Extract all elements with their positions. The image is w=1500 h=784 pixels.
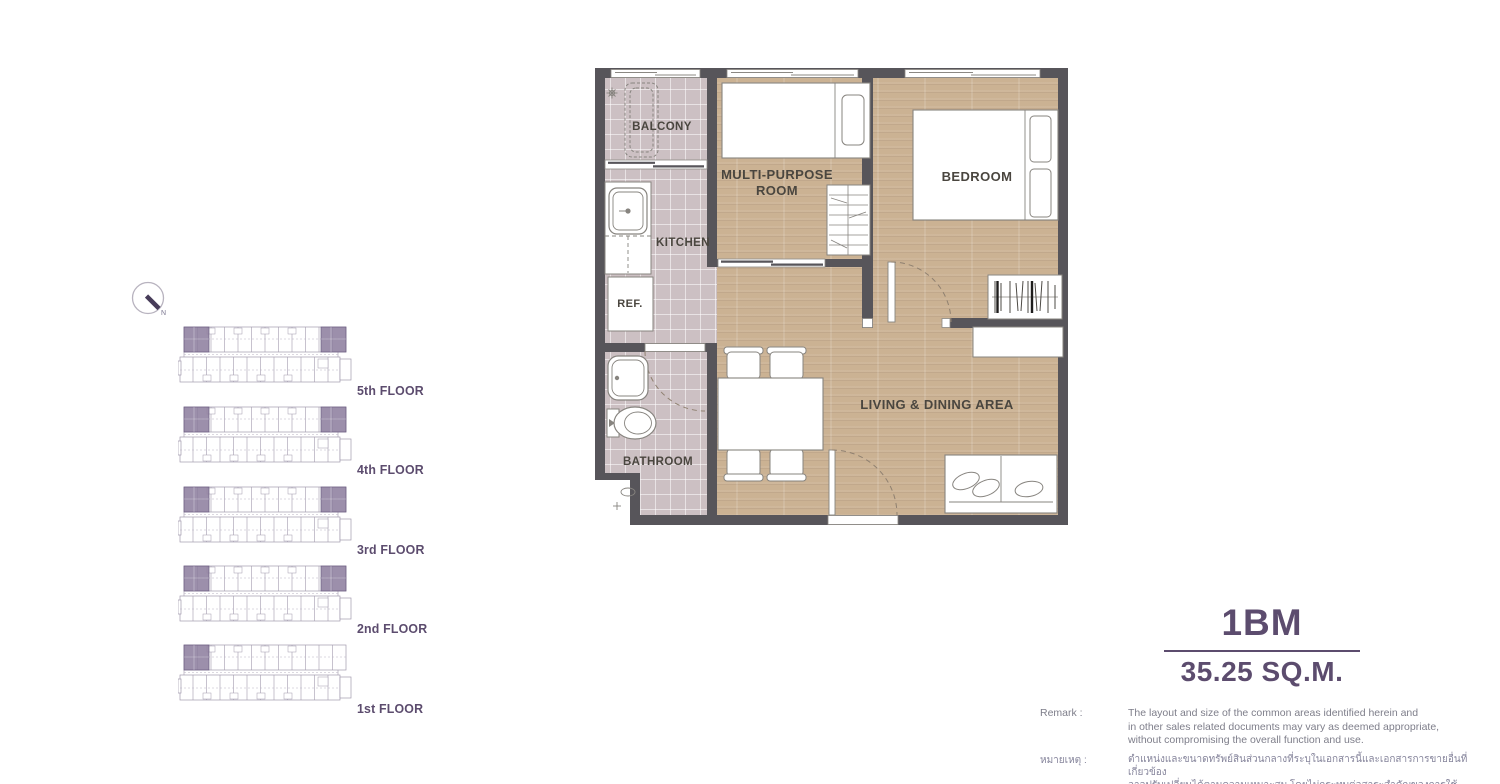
- bedroom-door-leaf: [888, 262, 895, 322]
- floor-label-2nd: 2nd FLOOR: [357, 621, 424, 636]
- floor-label-1st: 1st FLOOR: [357, 701, 424, 716]
- highlighted-unit: [184, 645, 209, 670]
- kitchen-sink-icon: [609, 188, 647, 234]
- floor-label-3rd: 3rd FLOOR: [357, 542, 424, 557]
- bathroom-door-swing: [645, 351, 705, 411]
- floor-plate-1st: [178, 644, 352, 701]
- compass-north-label: N: [161, 310, 166, 317]
- unit-info: 1BM 35.25 SQ.M.: [1097, 604, 1427, 686]
- ref-label: REF.: [617, 298, 642, 312]
- bedroom-door-swing: [891, 262, 951, 322]
- kitchen-label: KITCHEN: [656, 236, 710, 250]
- bathroom-fixtures: [607, 344, 705, 511]
- wardrobe: [988, 275, 1062, 319]
- dining-set: [718, 347, 823, 481]
- compass-needle-icon: [147, 296, 160, 309]
- balcony-label: BALCONY: [632, 120, 692, 134]
- bedroom-label: BEDROOM: [942, 169, 1013, 185]
- remark-label-en: Remark :: [1040, 707, 1128, 748]
- unit-divider: [1164, 650, 1360, 652]
- bathroom-sink-icon: [608, 356, 648, 400]
- dining-table: [718, 378, 823, 450]
- entrance-door-leaf: [829, 450, 835, 515]
- door-jambs: [863, 319, 951, 328]
- single-bed: [722, 83, 870, 158]
- floor-plate-4th: [178, 406, 352, 463]
- entrance-door-swing: [832, 450, 897, 515]
- floor-plate-2nd: [178, 565, 352, 622]
- remark-label-th: หมายเหตุ :: [1040, 753, 1128, 784]
- unit-code: 1BM: [1097, 604, 1427, 641]
- floor-plate-3rd: [178, 486, 352, 543]
- sofa: [945, 455, 1057, 513]
- compass: N: [131, 281, 175, 325]
- bathroom-door-leaf: [645, 344, 705, 352]
- bathroom-label: BATHROOM: [623, 455, 693, 469]
- double-bed: [913, 110, 1058, 220]
- floor-label-4th: 4th FLOOR: [357, 462, 424, 477]
- floor-label-5th: 5th FLOOR: [357, 383, 424, 398]
- toilet-icon: [607, 407, 656, 439]
- floor-drain-icon: [607, 88, 618, 99]
- unit-area: 35.25 SQ.M.: [1097, 658, 1427, 686]
- multipurpose-room-label: MULTI-PURPOSE ROOM: [712, 167, 842, 200]
- remark-text-th: ตำแหน่งและขนาดทรัพย์สินส่วนกลางที่ระบุใน…: [1128, 753, 1470, 784]
- living-dining-label: LIVING & DINING AREA: [860, 397, 1013, 413]
- unit-floorplan: BALCONY KITCHEN REF. BATHROOM MULTI-PURP…: [595, 68, 1068, 525]
- remark-block: Remark : The layout and size of the comm…: [1040, 707, 1470, 784]
- floor-plate-5th: [178, 326, 352, 383]
- floorplan-page: N: [0, 0, 1500, 784]
- remark-text-en: The layout and size of the common areas …: [1128, 707, 1470, 748]
- tv-console: [973, 327, 1063, 357]
- living-furniture: [718, 347, 1057, 515]
